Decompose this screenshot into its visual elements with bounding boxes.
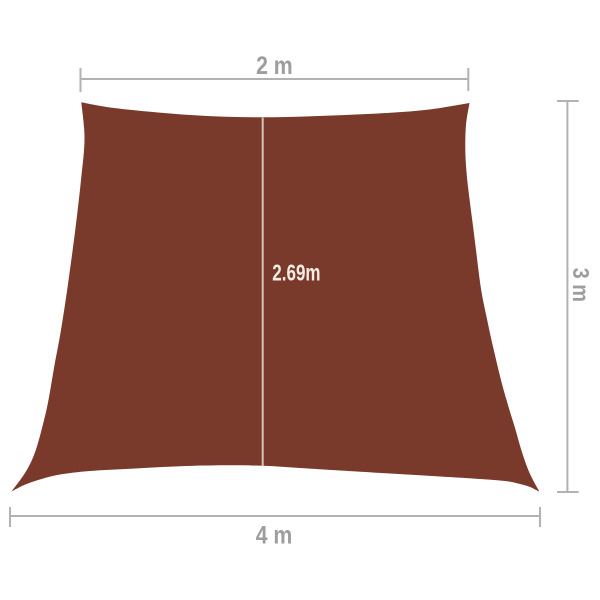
svg-text:3 m: 3 m [567,268,594,302]
svg-text:4 m: 4 m [256,521,293,549]
svg-text:2.69m: 2.69m [272,261,320,286]
svg-text:2 m: 2 m [256,51,293,79]
